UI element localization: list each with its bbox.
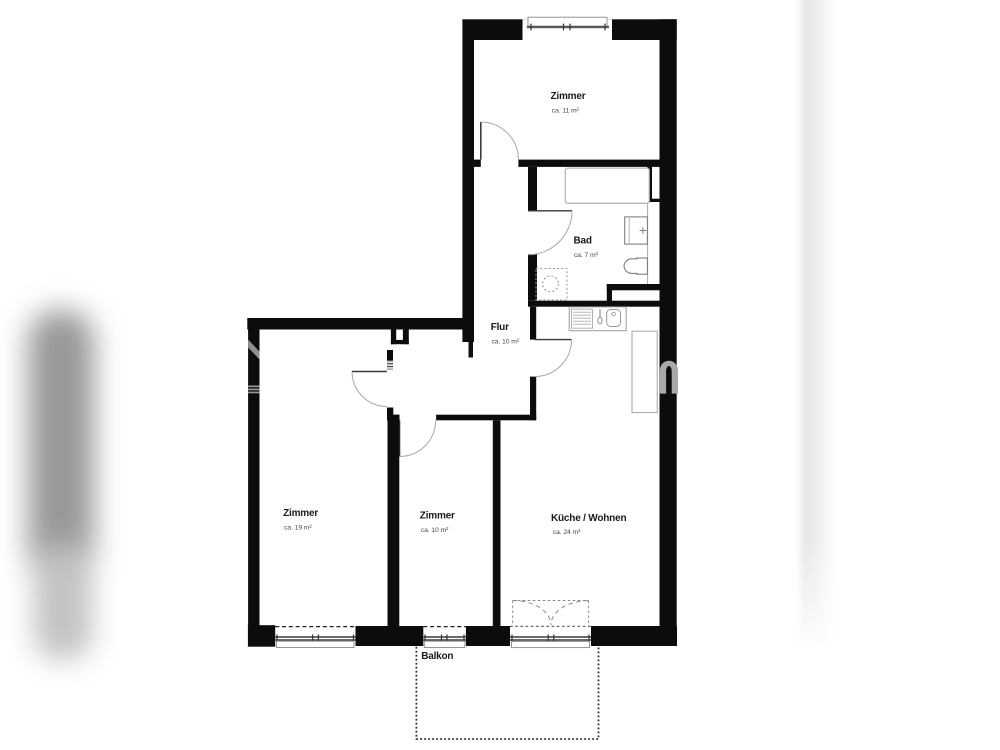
svg-text:Zimmer: Zimmer [420, 511, 455, 522]
svg-text:Zimmer: Zimmer [283, 508, 318, 519]
svg-text:Flur: Flur [491, 322, 509, 333]
svg-text:Küche / Wohnen: Küche / Wohnen [551, 513, 626, 524]
svg-text:ca. 10 m²: ca. 10 m² [492, 339, 520, 346]
svg-text:Zimmer: Zimmer [551, 91, 586, 102]
svg-text:ca. 10 m²: ca. 10 m² [421, 527, 449, 534]
svg-text:ca. 7 m²: ca. 7 m² [574, 252, 599, 259]
svg-text:ca. 19 m²: ca. 19 m² [284, 525, 312, 532]
svg-text:ca. 24 m²: ca. 24 m² [553, 529, 581, 536]
svg-text:Balkon: Balkon [421, 651, 453, 662]
svg-text:ca. 11 m²: ca. 11 m² [552, 108, 580, 115]
svg-text:Bad: Bad [574, 236, 592, 247]
